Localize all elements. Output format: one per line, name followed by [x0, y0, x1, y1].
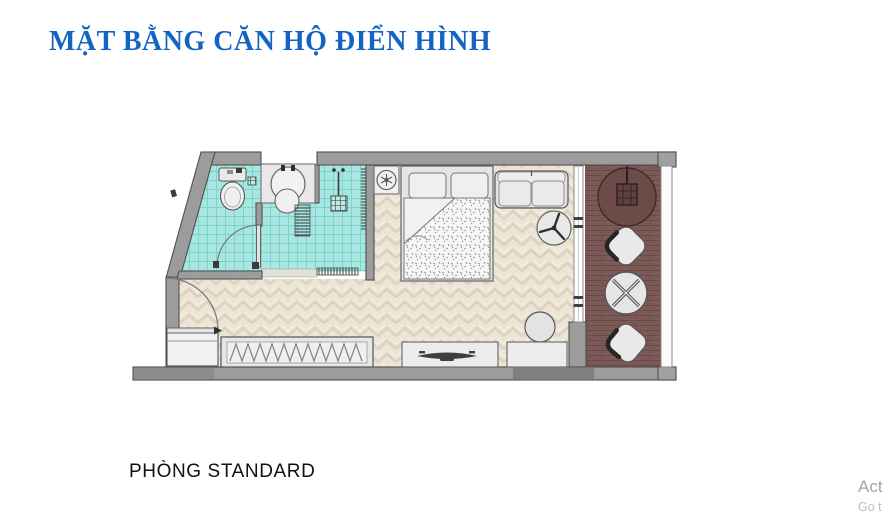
room-type-label: PHÒNG STANDARD: [129, 461, 315, 483]
floor-drain: [248, 177, 256, 185]
floor-plan: [0, 0, 894, 525]
balcony-stub-wall: [569, 322, 586, 367]
bathroom-threshold: [262, 269, 317, 277]
toilet-door-jamb-wall: [256, 203, 262, 226]
faucet-icon: [291, 165, 295, 171]
toilet-paper-holder: [170, 189, 177, 197]
slide-page: MẶT BẰNG CĂN HỘ ĐIỂN HÌNH: [0, 0, 894, 525]
balcony-railing: [661, 166, 672, 367]
tv-console: [402, 342, 498, 367]
sofa: [495, 171, 568, 208]
pillow: [451, 173, 488, 198]
bed: [401, 166, 493, 281]
desk: [507, 342, 567, 367]
towel-radiator: [295, 205, 310, 236]
bottom-wall-dark-left: [134, 368, 214, 379]
bottom-wall-dark-right: [513, 368, 594, 379]
sofa-cushion: [499, 181, 531, 206]
sliding-glass-door: [574, 166, 584, 322]
pillow: [409, 173, 446, 198]
toilet: [219, 168, 246, 210]
side-table-fan: [537, 211, 571, 245]
shower-right-wall: [366, 165, 374, 280]
wardrobe: [221, 337, 373, 367]
balcony-table: [605, 272, 647, 314]
activation-watermark: Act Go t: [858, 478, 883, 514]
shower-glass-side: [361, 168, 366, 230]
shower-glass-door: [317, 268, 358, 275]
washing-machine: [374, 166, 399, 194]
minibar-cabinet: [167, 330, 218, 366]
watermark-line1: Act: [858, 478, 883, 495]
bathroom-bottom-wall: [177, 271, 262, 279]
top-wall-right-segment: [317, 152, 676, 165]
railing-cap-bottom: [658, 367, 676, 380]
watermark-line2: Go t: [858, 501, 883, 514]
bottom-wall: [133, 367, 676, 380]
faucet-icon: [281, 165, 285, 171]
shower-head: [331, 196, 347, 211]
railing-cap-top: [658, 152, 676, 167]
sofa-cushion: [532, 181, 564, 206]
stool: [525, 312, 555, 342]
